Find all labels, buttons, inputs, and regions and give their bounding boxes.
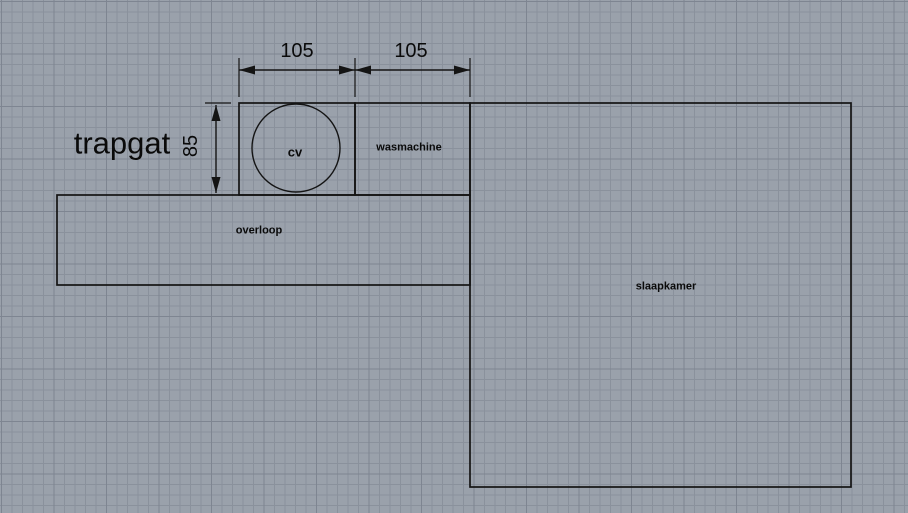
trapgat-height-arrow-bottom (212, 177, 221, 193)
dimension-label-wasmachine-width: 105 (394, 41, 427, 61)
room-label-cv: cv (288, 146, 302, 159)
dimension-label-trapgat-height: 85 (181, 135, 201, 157)
slaapkamer-room-outline (470, 103, 851, 487)
trapgat-area-label: trapgat (74, 128, 171, 159)
cv-width-arrow-left (239, 66, 255, 75)
floor-plan-drawing (0, 0, 908, 513)
overloop-room-outline (57, 195, 470, 285)
cv-width-arrow-right (339, 66, 355, 75)
trapgat-height-arrow-top (212, 105, 221, 121)
dimension-label-cv-width: 105 (280, 41, 313, 61)
wasmachine-width-arrow-right (454, 66, 470, 75)
room-label-overloop: overloop (236, 226, 282, 237)
room-label-wasmachine: wasmachine (376, 143, 441, 154)
wasmachine-width-arrow-left (355, 66, 371, 75)
cad-viewport[interactable]: trapgat 105 105 85 cv wasmachine overloo… (0, 0, 908, 513)
room-label-slaapkamer: slaapkamer (636, 282, 697, 293)
